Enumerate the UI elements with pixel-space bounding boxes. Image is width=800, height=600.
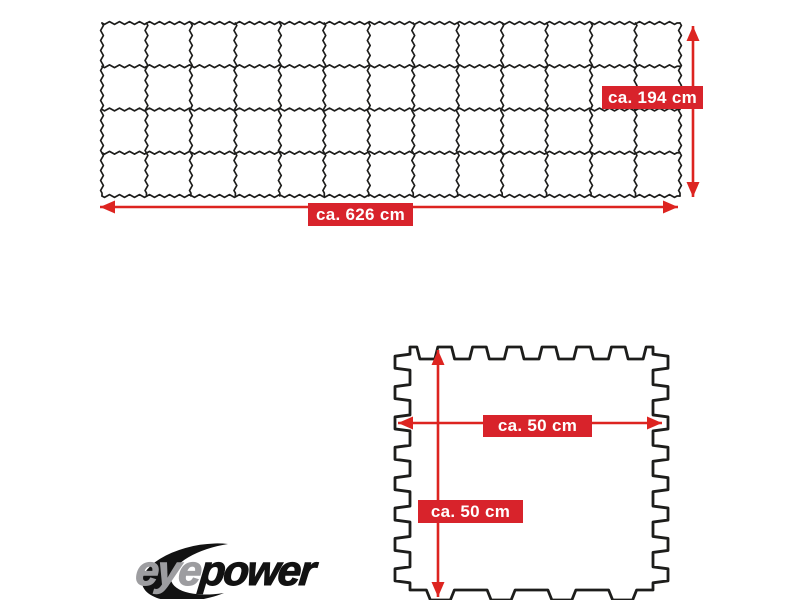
logo-text-eye: eye — [134, 547, 203, 594]
arrowhead-icon — [687, 182, 700, 197]
logo-text-power: power — [198, 547, 317, 594]
grid-height-label: ca. 194 cm — [602, 86, 703, 109]
tile-width-label: ca. 50 cm — [483, 415, 592, 437]
tile-height-label: ca. 50 cm — [418, 500, 523, 523]
arrowhead-icon — [100, 201, 115, 214]
grid-width-label: ca. 626 cm — [308, 203, 413, 226]
single-tile-outline — [395, 347, 668, 600]
eyepower-logo: eyepower — [112, 537, 317, 599]
product-dimension-diagram: ca. 194 cm ca. 626 cm ca. 50 cm ca. 50 c… — [0, 0, 800, 600]
arrowhead-icon — [663, 201, 678, 214]
logo-text: eyepower — [134, 550, 316, 592]
arrowhead-icon — [687, 26, 700, 41]
